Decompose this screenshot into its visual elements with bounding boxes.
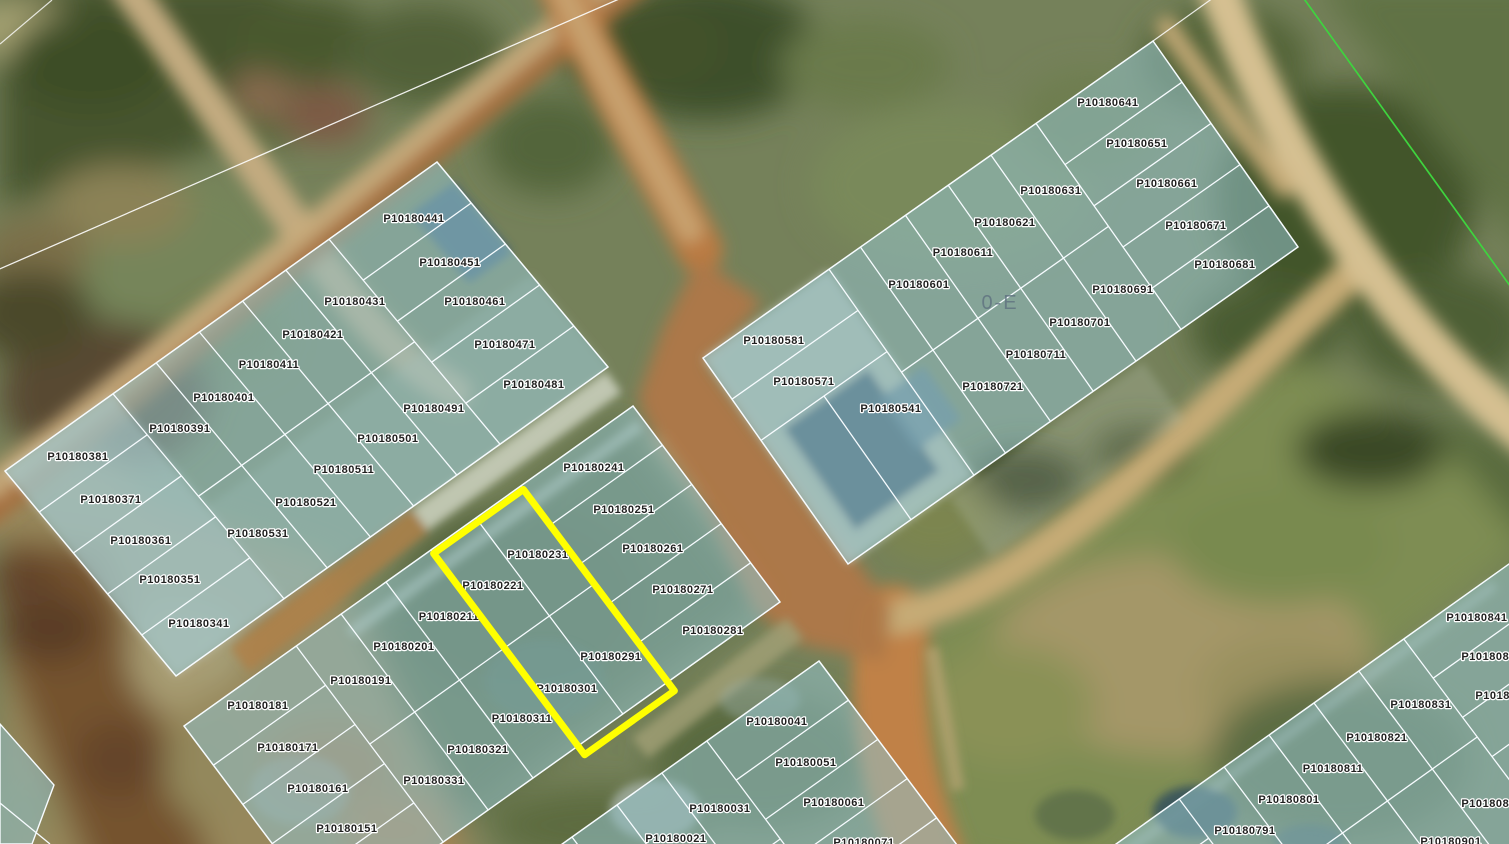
- svg-text:P10180831: P10180831: [1390, 699, 1451, 711]
- svg-text:P10180371: P10180371: [80, 494, 141, 506]
- svg-text:P10180331: P10180331: [403, 775, 464, 787]
- svg-text:P10180711: P10180711: [1006, 349, 1067, 361]
- svg-text:P10180361: P10180361: [110, 535, 171, 547]
- svg-text:P10180461: P10180461: [444, 296, 505, 308]
- svg-text:P10180431: P10180431: [324, 296, 385, 308]
- svg-text:P10180541: P10180541: [860, 403, 921, 415]
- svg-text:P10180161: P10180161: [287, 783, 348, 795]
- svg-text:P10180241: P10180241: [563, 462, 624, 474]
- svg-text:P10180661: P10180661: [1136, 178, 1197, 190]
- svg-text:P10180271: P10180271: [652, 584, 713, 596]
- svg-text:P10180381: P10180381: [47, 451, 108, 463]
- svg-text:P10180841: P10180841: [1446, 612, 1507, 624]
- svg-text:P10180211: P10180211: [419, 611, 480, 623]
- svg-text:P10180051: P10180051: [775, 757, 836, 769]
- svg-text:P10180631: P10180631: [1020, 185, 1081, 197]
- svg-text:P10180481: P10180481: [503, 379, 564, 391]
- svg-text:P10180691: P10180691: [1092, 284, 1153, 296]
- svg-text:P10180251: P10180251: [593, 504, 654, 516]
- svg-text:P10180341: P10180341: [168, 618, 229, 630]
- svg-text:P10180501: P10180501: [357, 433, 418, 445]
- svg-text:P10180521: P10180521: [275, 497, 336, 509]
- svg-text:P10180031: P10180031: [689, 803, 750, 815]
- svg-text:P10180021: P10180021: [645, 833, 706, 844]
- svg-text:P10180261: P10180261: [622, 543, 683, 555]
- svg-text:P10180641: P10180641: [1077, 97, 1138, 109]
- svg-text:P10180391: P10180391: [149, 423, 210, 435]
- svg-text:P10180891: P10180891: [1461, 798, 1509, 810]
- svg-text:P10180281: P10180281: [682, 625, 743, 637]
- svg-text:P10180671: P10180671: [1165, 220, 1226, 232]
- svg-text:P10180191: P10180191: [330, 675, 391, 687]
- svg-text:P10180071: P10180071: [833, 837, 894, 844]
- svg-text:P10180151: P10180151: [316, 823, 377, 835]
- svg-text:P10180701: P10180701: [1049, 317, 1110, 329]
- svg-text:P10180901: P10180901: [1420, 836, 1481, 844]
- svg-text:P10180821: P10180821: [1346, 732, 1407, 744]
- svg-text:P10180811: P10180811: [1303, 763, 1364, 775]
- svg-text:P10180301: P10180301: [536, 683, 597, 695]
- svg-text:P10180581: P10180581: [743, 335, 804, 347]
- svg-text:P10180231: P10180231: [507, 549, 568, 561]
- svg-text:P10180411: P10180411: [239, 359, 300, 371]
- svg-text:P10180221: P10180221: [462, 580, 523, 592]
- svg-text:P10180681: P10180681: [1194, 259, 1255, 271]
- svg-text:P10180861: P10180861: [1475, 690, 1509, 702]
- svg-text:P10180181: P10180181: [227, 700, 288, 712]
- svg-text:P10180531: P10180531: [227, 528, 288, 540]
- svg-text:P10180451: P10180451: [419, 257, 480, 269]
- svg-text:P10180351: P10180351: [139, 574, 200, 586]
- svg-text:P10180291: P10180291: [580, 651, 641, 663]
- svg-text:P10180571: P10180571: [773, 376, 834, 388]
- svg-text:P10180401: P10180401: [193, 392, 254, 404]
- svg-text:P10180201: P10180201: [373, 641, 434, 653]
- svg-text:P10180171: P10180171: [257, 742, 318, 754]
- svg-text:P10180311: P10180311: [492, 713, 553, 725]
- svg-text:P10180611: P10180611: [933, 247, 994, 259]
- svg-text:P10180321: P10180321: [447, 744, 508, 756]
- svg-text:P10180041: P10180041: [746, 716, 807, 728]
- svg-text:P10180651: P10180651: [1106, 138, 1167, 150]
- svg-text:P10180791: P10180791: [1214, 825, 1275, 837]
- svg-text:P10180491: P10180491: [403, 403, 464, 415]
- svg-text:0-E: 0-E: [981, 292, 1018, 314]
- svg-text:P10180441: P10180441: [383, 213, 444, 225]
- svg-text:P10180511: P10180511: [314, 464, 375, 476]
- svg-text:P10180601: P10180601: [888, 279, 949, 291]
- svg-text:P10180421: P10180421: [282, 329, 343, 341]
- svg-text:P10180471: P10180471: [474, 339, 535, 351]
- svg-text:P10180621: P10180621: [974, 217, 1035, 229]
- svg-text:P10180061: P10180061: [803, 797, 864, 809]
- svg-text:P10180801: P10180801: [1258, 794, 1319, 806]
- svg-text:P10180851: P10180851: [1461, 651, 1509, 663]
- svg-text:P10180721: P10180721: [962, 381, 1023, 393]
